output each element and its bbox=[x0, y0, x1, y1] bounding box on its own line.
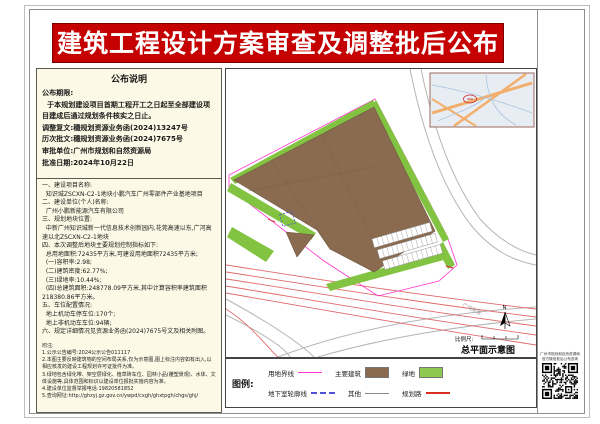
legend-item-green-space: 绿地 bbox=[402, 367, 443, 378]
site-plan-drawing: 广河高速 N 比例尺: bbox=[226, 69, 536, 357]
text-line: 地上非机动车车位:94辆; bbox=[42, 320, 216, 329]
other-line-swatch bbox=[365, 393, 389, 394]
legend-item-site-boundary: 用地界线 bbox=[268, 368, 322, 378]
legend-row-1: 用地界线 主要建筑 绿地 bbox=[268, 367, 456, 378]
text-line: (四)总建筑面积:248778.09平方米,其中计算容积率建筑面积218380.… bbox=[42, 285, 216, 302]
page-title: 建筑工程设计方案审查及调整批后公布 bbox=[52, 23, 504, 63]
text-line: 1.公示公告编号:2024公示公告011117 bbox=[42, 350, 216, 357]
notice-panel: 公布说明 公布期限: 于本规划建设项目首期工程开工之日起至全部建设项目建成后通过… bbox=[36, 68, 222, 413]
scale-bar: 比例尺: bbox=[455, 335, 518, 343]
text-line: 地上机动车停车位:170个; bbox=[42, 311, 216, 320]
green-swatch bbox=[419, 367, 443, 378]
site-plan-panel: 广河高速 N 比例尺: bbox=[225, 68, 537, 358]
text-line: 批准日期:2024年10月22日 bbox=[42, 157, 216, 169]
plan-caption: 总平面示意图 bbox=[461, 344, 515, 356]
text-line: 于本规划建设项目首期工程开工之日起至全部建设项目建成后通过规划条件核实之日止。 bbox=[42, 99, 216, 122]
legend-panel: 图例: 用地界线 主要建筑 绿地 地下室轮廓线 其他 规划路 bbox=[225, 358, 537, 408]
basement-dash-swatch bbox=[311, 392, 335, 394]
text-line: 审批单位:广州市规划和自然资源局 bbox=[42, 145, 216, 157]
planned-road-lines bbox=[226, 265, 536, 357]
legend-item-main-building: 主要建筑 bbox=[335, 367, 389, 378]
text-line: 3.绿地包含绿化带、架空层绿化、植草砖车位、园林小品(雕塑景观)、水体、文体设施… bbox=[42, 372, 216, 386]
legend-label: 其他 bbox=[348, 388, 361, 398]
text-line: 公布期限: bbox=[42, 87, 216, 99]
text-line: 5.查询网址:http://ghzyj.gz.gov.cn/ywpd/cxgh/… bbox=[42, 393, 216, 400]
text-line: 六、规定详细情况见资源业务函(2024)7675号文及相关附图。 bbox=[42, 328, 216, 337]
text-line: 附注: bbox=[42, 343, 216, 350]
legend-label: 地下室轮廓线 bbox=[268, 388, 307, 398]
legend-label: 用地界线 bbox=[268, 368, 294, 378]
svg-text:N: N bbox=[503, 305, 507, 311]
legend-title: 图例: bbox=[232, 377, 254, 390]
secondary-building-footprint bbox=[286, 232, 314, 257]
qr-panel: 广州市规划和自然资源局 官方微信批后公布查询 bbox=[539, 351, 581, 403]
boundary-line-swatch bbox=[298, 372, 322, 373]
building-swatch bbox=[365, 367, 389, 378]
text-line: 2.本图主要反映建筑物的空间布局关系,仅为示意图,图上标注内容如有出入,以相应核… bbox=[42, 357, 216, 371]
qr-caption-line2: 官方微信批后公布查询 bbox=[540, 356, 580, 361]
text-line: 一、建设项目名称: bbox=[42, 182, 216, 191]
road-name-label: 广河高速 bbox=[461, 302, 482, 317]
legend-item-planned-road: 规划路 bbox=[402, 388, 450, 398]
road-line-swatch bbox=[426, 392, 450, 394]
page: { "title": "建筑工程设计方案审查及调整批后公布", "notice"… bbox=[0, 0, 600, 424]
vicinity-inset-map bbox=[430, 73, 534, 127]
legend-row-2: 地下室轮廓线 其他 规划路 bbox=[268, 388, 463, 398]
text-line: 调整复文:穗规划资源业务函(2024)13247号 bbox=[42, 122, 216, 134]
text-line: 二、建设单位(个人)名称: bbox=[42, 199, 216, 208]
notice-header: 公布说明 bbox=[42, 72, 216, 85]
text-line: (一)容积率:2.98; bbox=[42, 259, 216, 268]
legend-item-other: 其他 bbox=[348, 388, 389, 398]
text-line: 三、规划地块位置: bbox=[42, 216, 216, 225]
text-line: 中新广州知识城新一代信息技术创新园内,花莞高速以东,广河高速以北ZSCXN-C2… bbox=[42, 225, 216, 242]
legend-label: 主要建筑 bbox=[335, 368, 361, 378]
qr-code bbox=[542, 363, 578, 399]
legend-item-basement-outline: 地下室轮廓线 bbox=[268, 388, 335, 398]
text-line: (二)建筑密度:62.77%; bbox=[42, 268, 216, 277]
notice-body-lines: 一、建设项目名称: 知识城ZSCXN-C2-1地块小鹏汽车广州零部件产业基地项目… bbox=[37, 179, 221, 340]
right-column-divider bbox=[537, 10, 538, 413]
notice-notes-lines: 附注:1.公示公告编号:2024公示公告0111172.本图主要反映建筑物的空间… bbox=[37, 343, 221, 404]
notice-top-section: 公布说明 公布期限: 于本规划建设项目首期工程开工之日起至全部建设项目建成后通过… bbox=[37, 69, 221, 179]
notice-top-lines: 公布期限: 于本规划建设项目首期工程开工之日起至全部建设项目建成后通过规划条件核… bbox=[42, 87, 216, 168]
text-line: 历次批文:穗规划资源业务函(2024)7675号 bbox=[42, 133, 216, 145]
text-line: (三)绿地率:10.44%; bbox=[42, 277, 216, 286]
legend-label: 绿地 bbox=[402, 368, 415, 378]
text-line: 知识城ZSCXN-C2-1地块小鹏汽车广州零部件产业基地项目 bbox=[42, 191, 216, 200]
text-line: 四、本次调整后地块主要规划控制指标如下: bbox=[42, 242, 216, 251]
scale-label: 比例尺: bbox=[455, 335, 474, 343]
text-line: 五、车位配置情况: bbox=[42, 302, 216, 311]
legend-label: 规划路 bbox=[402, 388, 422, 398]
